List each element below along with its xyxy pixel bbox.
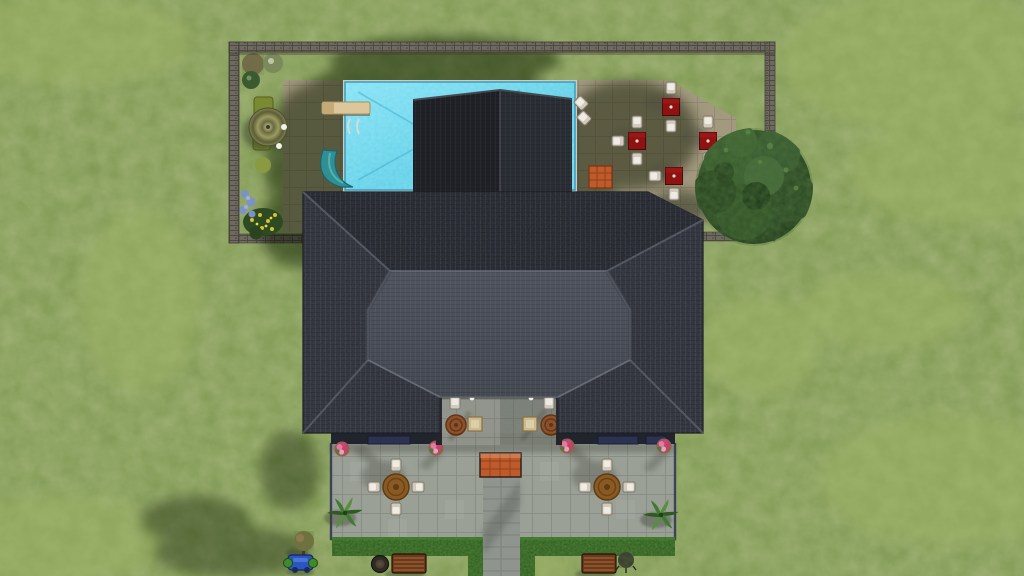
orange-steps[interactable]: Orange steps xyxy=(480,453,521,477)
barrel-table[interactable] xyxy=(446,415,466,435)
dining-chair[interactable] xyxy=(612,136,624,146)
hedge-row[interactable] xyxy=(332,537,483,556)
dining-table[interactable] xyxy=(663,99,680,116)
dining-chair[interactable] xyxy=(632,116,642,128)
courtyard[interactable]: Inner courtyard xyxy=(436,395,562,445)
patio-chair[interactable] xyxy=(623,482,635,492)
flower-pot[interactable] xyxy=(335,442,350,457)
walkway[interactable]: Front walkway xyxy=(483,475,520,576)
lot-scene: Top-down view of house lot Lawn Pool dec… xyxy=(0,0,1024,576)
hedge-row[interactable] xyxy=(520,537,675,556)
blue-toy[interactable]: Blue toy xyxy=(284,555,318,576)
patio-chair[interactable] xyxy=(602,503,612,515)
hedge-walkway-side[interactable] xyxy=(520,556,535,576)
awning[interactable] xyxy=(598,436,638,444)
dining-chair[interactable] xyxy=(669,188,679,200)
patio-chair[interactable] xyxy=(391,459,401,471)
dining-table[interactable] xyxy=(629,133,646,150)
bench[interactable] xyxy=(392,554,426,573)
plate[interactable] xyxy=(281,124,287,130)
flower-pot[interactable] xyxy=(657,439,672,454)
patio-chair[interactable] xyxy=(368,482,380,492)
rear-wing-roof[interactable]: Rear wing roof xyxy=(413,90,572,193)
dining-chair[interactable] xyxy=(632,153,642,165)
dining-chair[interactable] xyxy=(649,171,661,181)
courtyard-chair[interactable] xyxy=(544,397,554,409)
dining-chair[interactable] xyxy=(666,82,676,94)
round-table[interactable] xyxy=(594,474,620,500)
dining-table[interactable] xyxy=(666,168,683,185)
diving-board[interactable]: Diving board xyxy=(322,102,370,116)
game-viewport: Top-down view of house lot Lawn Pool dec… xyxy=(0,0,1024,576)
round-table[interactable] xyxy=(383,474,409,500)
dining-chair[interactable] xyxy=(666,120,676,132)
dining-chair[interactable] xyxy=(703,116,713,128)
hedge-walkway-side[interactable] xyxy=(468,556,483,576)
bench[interactable] xyxy=(582,554,616,573)
wall-inner-shade xyxy=(229,52,775,55)
plate[interactable] xyxy=(276,143,282,149)
patio-chair[interactable] xyxy=(602,459,612,471)
patio-chair[interactable] xyxy=(391,503,401,515)
orange-mat[interactable]: Terracotta step mat xyxy=(589,166,612,188)
fire-pit[interactable]: Fire pit xyxy=(372,556,389,573)
courtyard-square-table[interactable] xyxy=(523,417,537,431)
inner-roof[interactable]: Lower front roof xyxy=(368,271,630,397)
courtyard-chair[interactable] xyxy=(450,397,460,409)
patio-chair[interactable] xyxy=(579,482,591,492)
courtyard-square-table[interactable] xyxy=(468,417,482,431)
patio-chair[interactable] xyxy=(412,482,424,492)
awning[interactable] xyxy=(368,436,410,444)
